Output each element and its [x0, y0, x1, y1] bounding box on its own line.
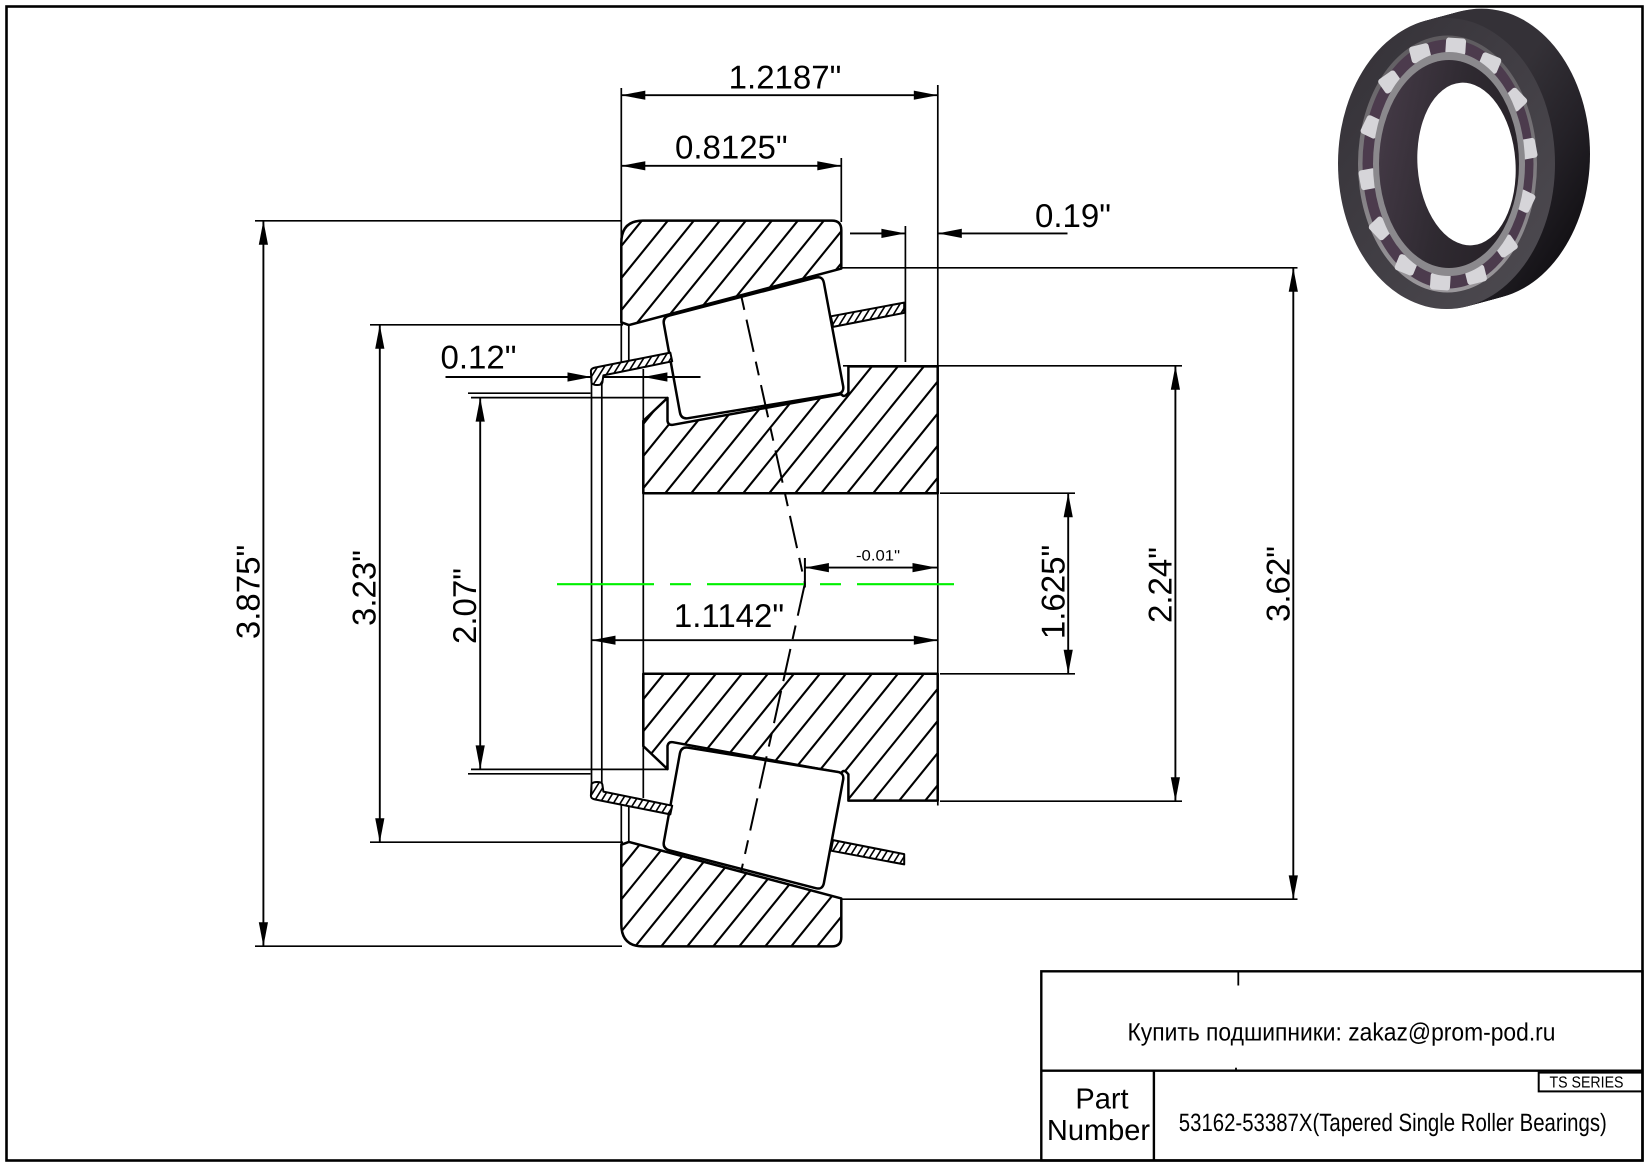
- svg-text:0.12": 0.12": [441, 339, 517, 376]
- svg-text:0.8125": 0.8125": [675, 129, 788, 166]
- svg-text:Number: Number: [1047, 1115, 1150, 1147]
- svg-text:1.1142": 1.1142": [674, 597, 784, 634]
- svg-text:2.24": 2.24": [1142, 547, 1179, 623]
- svg-text:-0.01": -0.01": [856, 548, 900, 565]
- svg-text:2.07": 2.07": [446, 568, 483, 644]
- svg-text:3.23": 3.23": [346, 550, 383, 626]
- svg-text:3.875": 3.875": [230, 545, 267, 639]
- svg-text:TS SERIES: TS SERIES: [1550, 1074, 1624, 1091]
- svg-text:1.625": 1.625": [1035, 545, 1072, 639]
- svg-text:Part: Part: [1075, 1083, 1128, 1115]
- svg-text:53162-53387X(Tapered Single Ro: 53162-53387X(Tapered Single Roller Beari…: [1179, 1109, 1607, 1137]
- svg-text:0.19": 0.19": [1035, 197, 1111, 234]
- svg-text:3.62": 3.62": [1260, 546, 1297, 622]
- svg-text:Купить подшипники: zakaz@prom-: Купить подшипники: zakaz@prom-pod.ru: [1128, 1019, 1556, 1047]
- svg-text:1.2187": 1.2187": [729, 59, 842, 96]
